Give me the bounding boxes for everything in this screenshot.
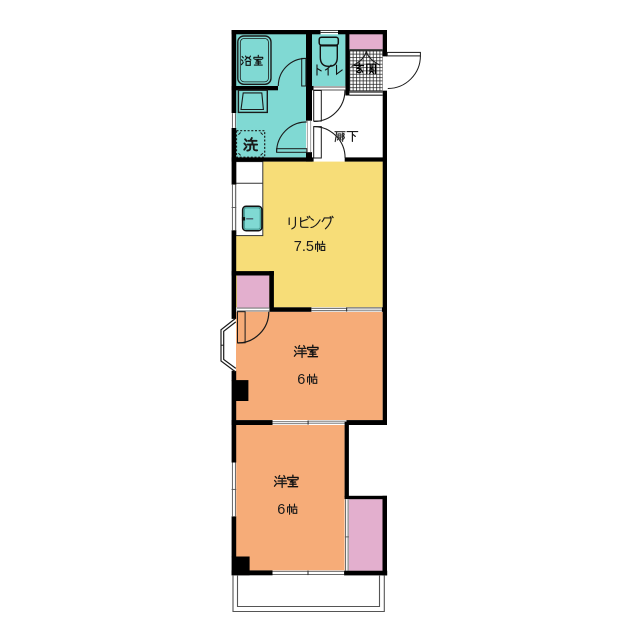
svg-text:6: 6 <box>277 502 285 518</box>
svg-text:7.5: 7.5 <box>294 239 314 255</box>
svg-text:6: 6 <box>297 372 305 388</box>
